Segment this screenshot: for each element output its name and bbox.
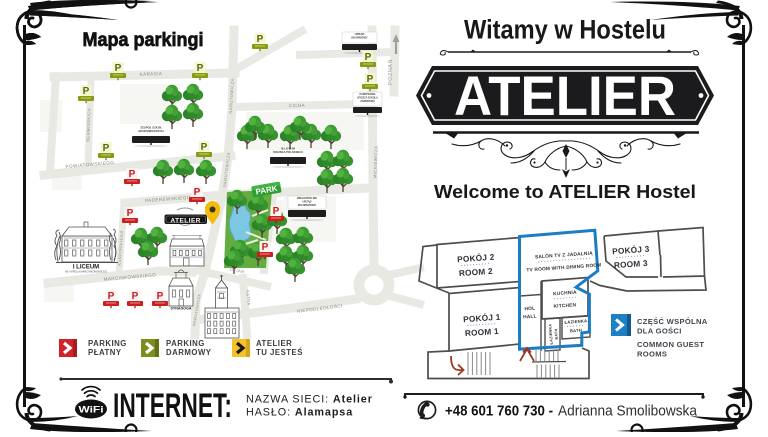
svg-text:TU JESTEŚ: TU JESTEŚ bbox=[256, 348, 303, 357]
svg-text:IM. KAROLA MARCINKOWSKIEGO: IM. KAROLA MARCINKOWSKIEGO bbox=[65, 270, 107, 274]
svg-text:PARKING: PARKING bbox=[166, 339, 205, 348]
svg-text:SYNAGOGA: SYNAGOGA bbox=[171, 307, 192, 311]
svg-text:INTERNET:: INTERNET: bbox=[113, 387, 232, 425]
svg-text:KARASIA: KARASIA bbox=[140, 71, 163, 77]
svg-text:EKONOMICZNYCH: EKONOMICZNYCH bbox=[138, 129, 163, 133]
svg-text:ATELIER: ATELIER bbox=[256, 339, 292, 348]
svg-text:Welcome to ATELIER Hostel: Welcome to ATELIER Hostel bbox=[434, 182, 696, 202]
svg-text:SKARBOWY: SKARBOWY bbox=[351, 36, 368, 40]
svg-text:Adrianna Smolibowska: Adrianna Smolibowska bbox=[558, 404, 698, 420]
svg-text:HALL: HALL bbox=[523, 314, 537, 321]
svg-text:WiFi: WiFi bbox=[79, 405, 104, 416]
svg-text:HOL: HOL bbox=[524, 306, 535, 313]
svg-text:ATELIER: ATELIER bbox=[171, 217, 201, 224]
svg-text:+48 601 760 730 -: +48 601 760 730 - bbox=[445, 404, 553, 420]
svg-text:POZNAŃ: POZNAŃ bbox=[387, 59, 394, 85]
svg-text:WOJSKA POLSKIEGO: WOJSKA POLSKIEGO bbox=[273, 150, 303, 154]
svg-text:NAZWA SIECI: Atelier: NAZWA SIECI: Atelier bbox=[246, 394, 373, 406]
svg-text:ROOMS: ROOMS bbox=[637, 350, 667, 359]
svg-text:PŁATNY: PŁATNY bbox=[88, 348, 122, 357]
svg-text:URZĄD: URZĄD bbox=[302, 200, 311, 204]
svg-text:PARKING: PARKING bbox=[88, 339, 127, 348]
svg-text:ATELIER: ATELIER bbox=[454, 64, 676, 127]
svg-text:COMMON GUEST: COMMON GUEST bbox=[637, 340, 704, 349]
svg-text:BATH: BATH bbox=[554, 328, 559, 339]
svg-text:HASŁO: Alamapsa: HASŁO: Alamapsa bbox=[246, 407, 353, 419]
svg-text:Witamy w Hostelu: Witamy w Hostelu bbox=[464, 15, 666, 45]
svg-text:Mapa parkingi: Mapa parkingi bbox=[83, 30, 204, 51]
svg-text:WIELKOPOLSKI: WIELKOPOLSKI bbox=[297, 196, 317, 200]
svg-text:DLA GOŚCI: DLA GOŚCI bbox=[637, 327, 682, 336]
svg-text:BATH: BATH bbox=[570, 328, 582, 334]
svg-text:DARMOWY: DARMOWY bbox=[166, 348, 212, 357]
svg-text:CZĘŚĆ WSPÓLNA: CZĘŚĆ WSPÓLNA bbox=[637, 317, 708, 326]
svg-text:CICHA: CICHA bbox=[289, 103, 306, 108]
svg-text:ZAWODOWA: ZAWODOWA bbox=[360, 100, 375, 103]
